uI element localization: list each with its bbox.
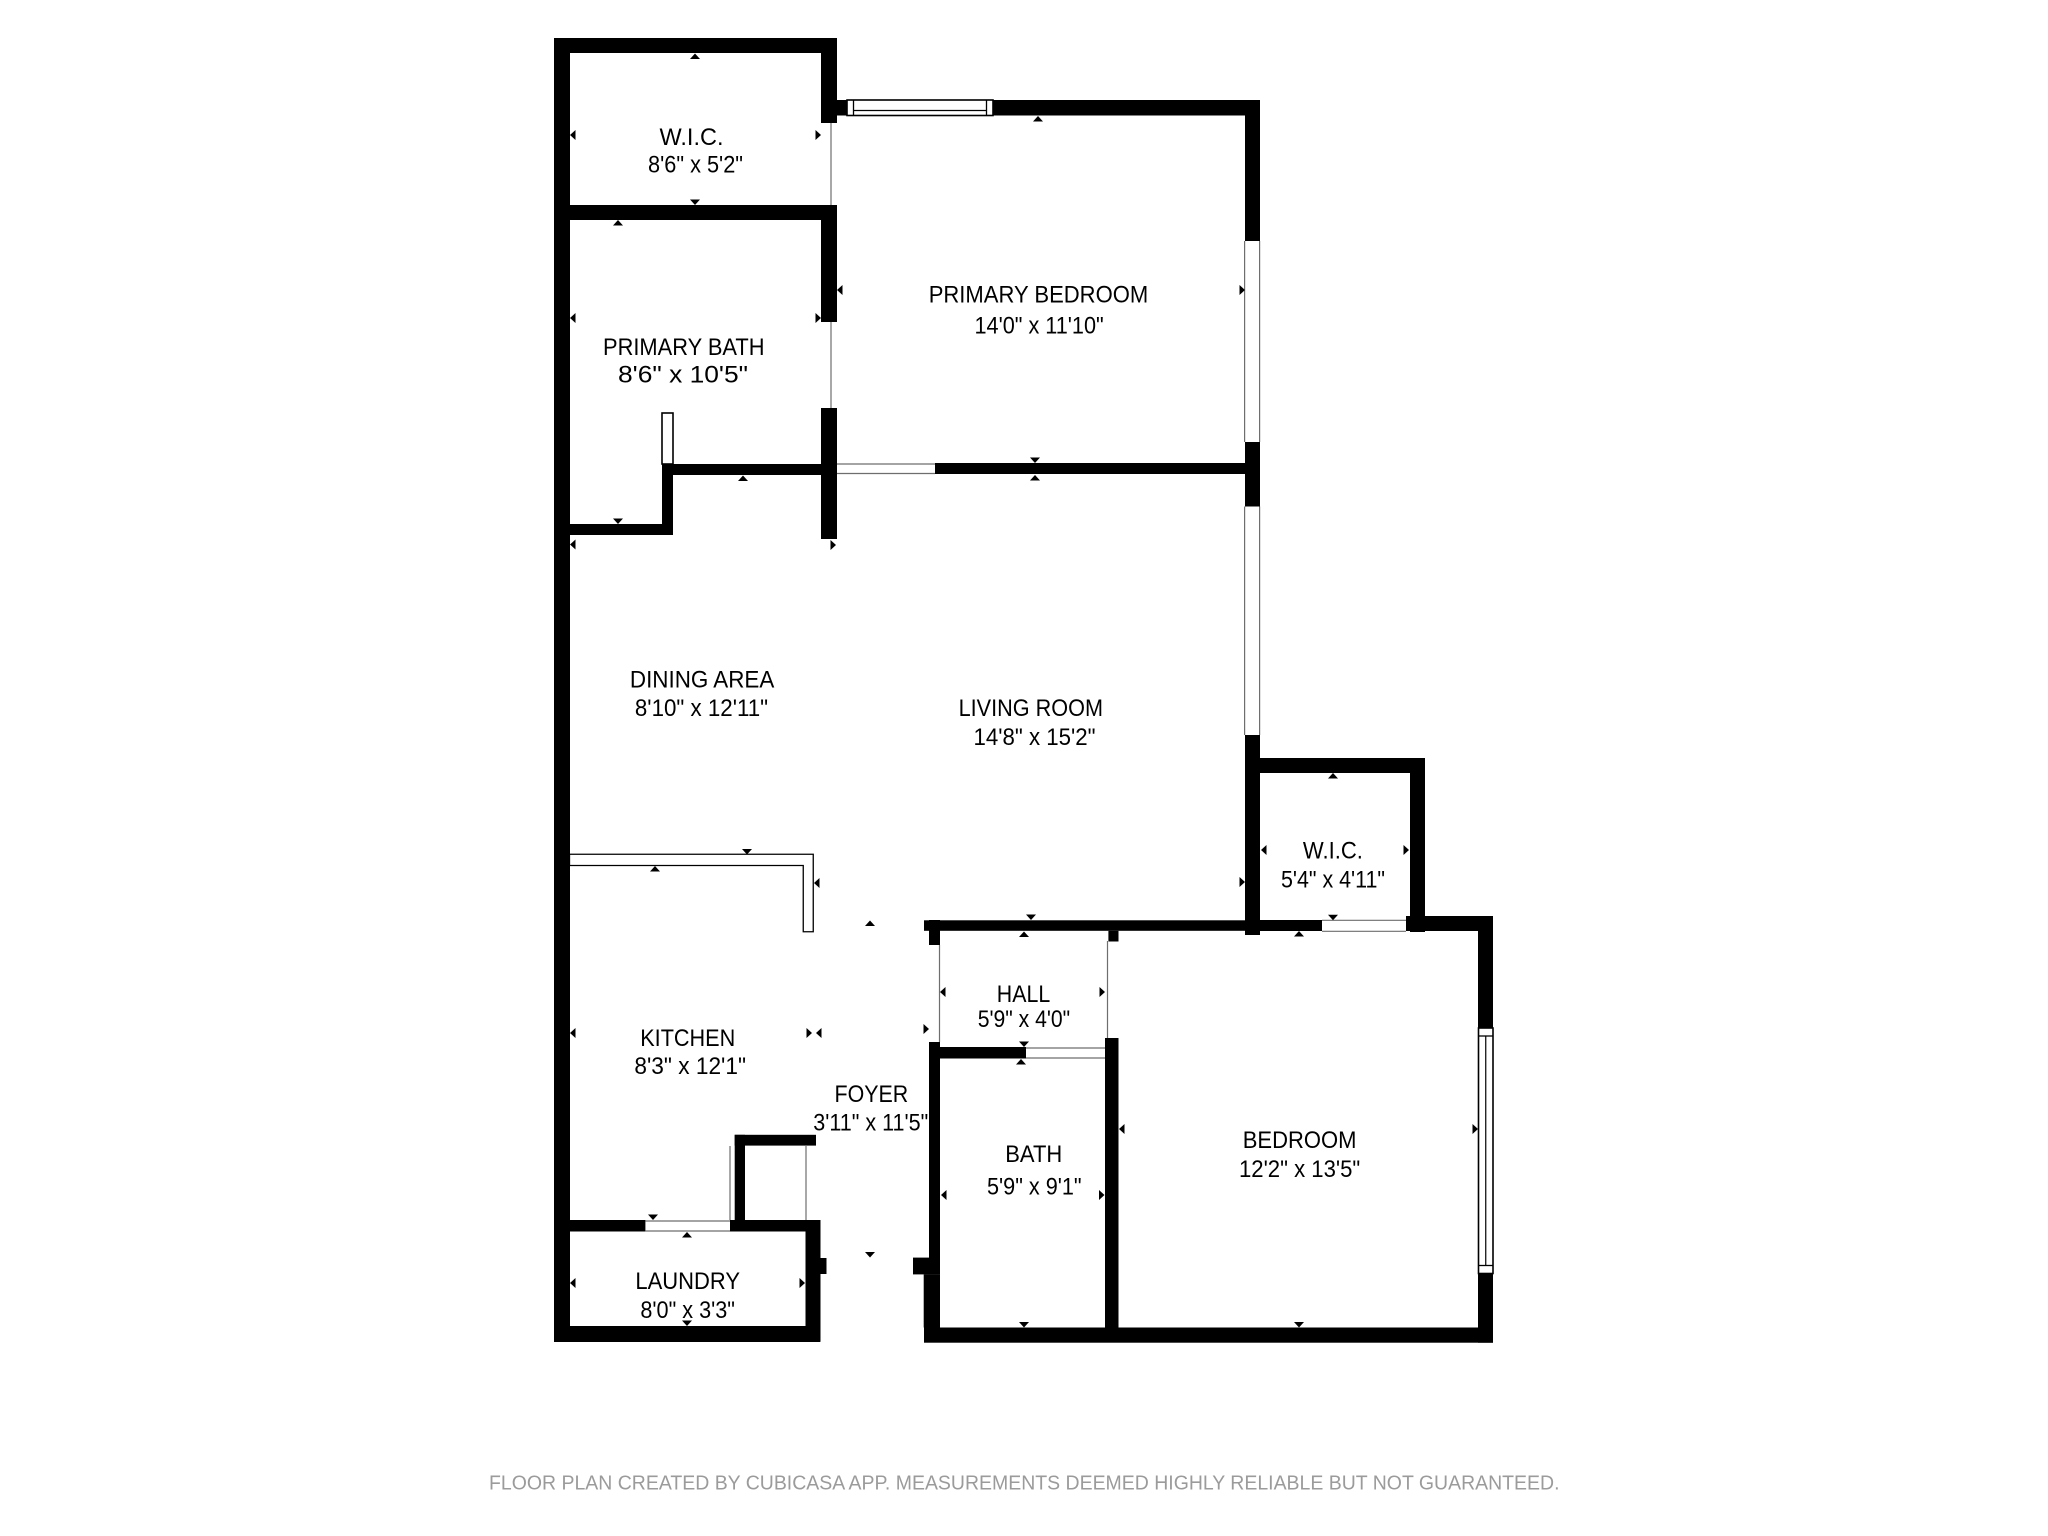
svg-text:KITCHEN: KITCHEN xyxy=(640,1025,735,1052)
svg-text:PRIMARY BATH: PRIMARY BATH xyxy=(603,334,765,361)
svg-text:14'0" x 11'10": 14'0" x 11'10" xyxy=(975,312,1104,339)
svg-text:FLOOR PLAN CREATED BY CUBICASA: FLOOR PLAN CREATED BY CUBICASA APP. MEAS… xyxy=(489,1473,1560,1495)
svg-text:HALL: HALL xyxy=(997,981,1050,1008)
svg-text:5'9" x 4'0": 5'9" x 4'0" xyxy=(978,1006,1070,1033)
svg-text:DINING AREA: DINING AREA xyxy=(630,666,774,693)
svg-text:8'6" x 10'5": 8'6" x 10'5" xyxy=(618,362,748,389)
svg-text:BEDROOM: BEDROOM xyxy=(1243,1127,1357,1154)
svg-text:PRIMARY BEDROOM: PRIMARY BEDROOM xyxy=(929,282,1148,309)
svg-text:8'6" x 5'2": 8'6" x 5'2" xyxy=(648,152,743,179)
svg-text:FOYER: FOYER xyxy=(835,1081,909,1108)
svg-text:LAUNDRY: LAUNDRY xyxy=(635,1268,740,1295)
svg-text:3'11" x 11'5": 3'11" x 11'5" xyxy=(813,1110,928,1137)
svg-text:W.I.C.: W.I.C. xyxy=(660,124,724,151)
svg-text:8'10" x 12'11": 8'10" x 12'11" xyxy=(635,695,768,722)
svg-text:5'4" x 4'11": 5'4" x 4'11" xyxy=(1281,867,1385,894)
svg-text:LIVING ROOM: LIVING ROOM xyxy=(959,695,1103,722)
svg-text:5'9" x 9'1": 5'9" x 9'1" xyxy=(987,1173,1082,1200)
svg-text:12'2" x 13'5": 12'2" x 13'5" xyxy=(1239,1156,1360,1183)
svg-text:14'8" x 15'2": 14'8" x 15'2" xyxy=(974,724,1096,751)
svg-text:W.I.C.: W.I.C. xyxy=(1303,838,1363,865)
svg-text:8'0" x 3'3": 8'0" x 3'3" xyxy=(640,1297,735,1324)
svg-text:8'3" x 12'1": 8'3" x 12'1" xyxy=(634,1053,746,1080)
svg-text:BATH: BATH xyxy=(1005,1141,1062,1168)
